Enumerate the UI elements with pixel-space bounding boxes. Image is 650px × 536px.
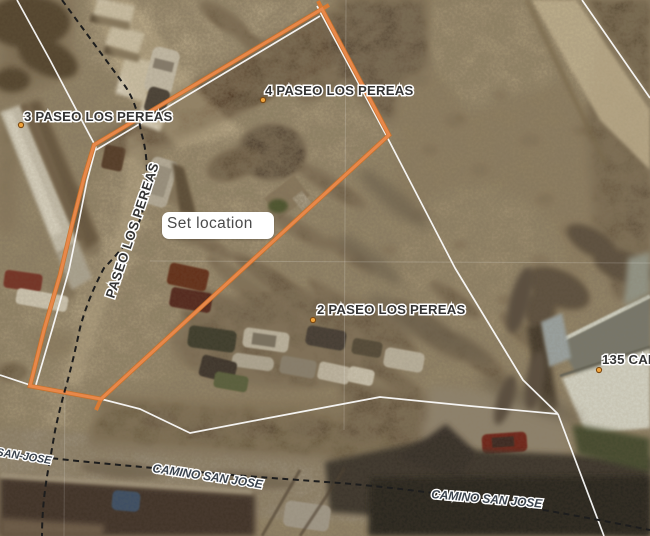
svg-text:CAMINO SAN JOSE: CAMINO SAN JOSE [431,487,544,511]
svg-text:PASEO LOS PEREAS: PASEO LOS PEREAS [103,161,162,300]
svg-text:3 PASEO LOS PEREAS: 3 PASEO LOS PEREAS [24,109,172,124]
svg-text:CAMINO SAN JOSE: CAMINO SAN JOSE [152,461,265,491]
svg-text:135 CAM: 135 CAM [602,352,650,367]
svg-text:SAN-JOSE: SAN-JOSE [0,446,53,467]
svg-text:2 PASEO LOS PEREAS: 2 PASEO LOS PEREAS [317,302,465,317]
svg-text:4 PASEO LOS PEREAS: 4 PASEO LOS PEREAS [265,83,413,98]
